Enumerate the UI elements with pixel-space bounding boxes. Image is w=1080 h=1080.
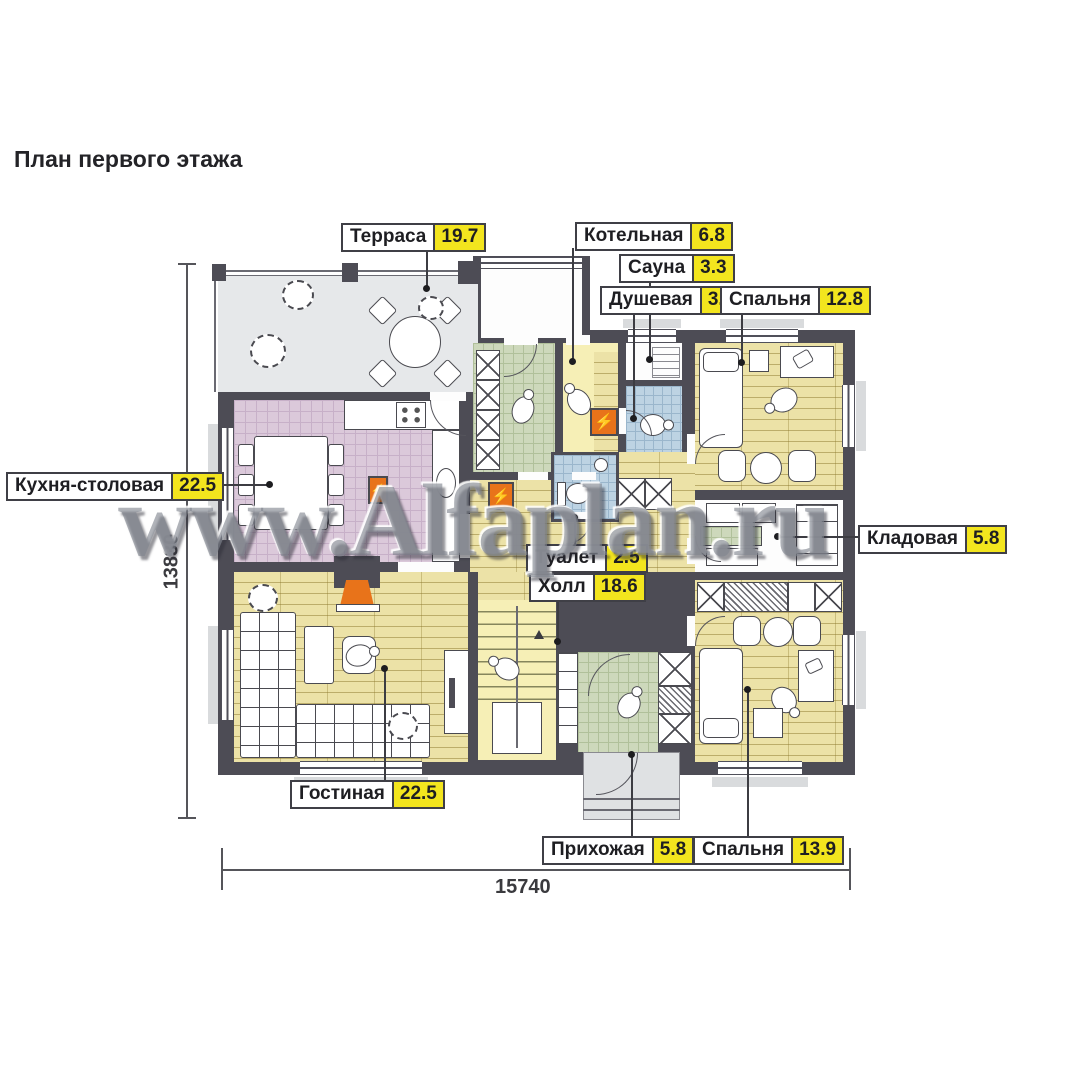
leader-bedroom1-dot: [738, 359, 745, 366]
label-hall-name: Холл: [529, 573, 595, 602]
leader-storage: [778, 536, 860, 538]
label-entry: Прихожая 5.8: [542, 836, 694, 865]
living-plant-2: [388, 712, 418, 740]
leader-living: [384, 668, 386, 780]
bedroom2-wardrobe-left: [697, 582, 724, 612]
sauna-window-sill: [623, 319, 681, 328]
leader-boiler-dot: [569, 358, 576, 365]
lobby-hall-door-gap: [518, 472, 548, 480]
boiler-door-gap: [566, 335, 590, 345]
label-terrace-area: 19.7: [435, 223, 486, 252]
living-coffee-table: [304, 626, 334, 684]
leader-kitchen-dot: [266, 481, 273, 488]
wc-toilet-bowl: [566, 483, 590, 504]
label-sauna: Сауна 3.3: [619, 254, 735, 283]
lobby-wardrobe-1: [476, 350, 500, 380]
label-sauna-area: 3.3: [694, 254, 734, 283]
bedroom2-side-table: [753, 708, 783, 738]
label-boiler-name: Котельная: [575, 222, 692, 251]
dim-width-value: 15740: [495, 876, 551, 899]
leader-wc-dot: [571, 514, 578, 521]
hall-floor-spur-up: [613, 452, 695, 480]
storage-shelf-top-1: [706, 503, 740, 523]
living-window-left: [221, 630, 234, 720]
label-bedroom2-area: 13.9: [793, 836, 844, 865]
entry-wardrobe-1: [658, 652, 692, 686]
label-bedroom2: Спальня 13.9: [693, 836, 844, 865]
terrace-plant-1: [282, 280, 314, 310]
label-bedroom1-name: Спальня: [720, 286, 820, 315]
label-wc: Туалет 2.5: [526, 544, 648, 573]
bedroom2-wardrobe-mid: [724, 582, 788, 612]
label-kitchen: Кухня-столовая 22.5: [6, 472, 224, 501]
bedroom1-armchair-2: [788, 450, 816, 482]
label-storage-area: 5.8: [967, 525, 1007, 554]
dining-chair-3: [238, 504, 254, 526]
label-bedroom1: Спальня 12.8: [720, 286, 871, 315]
entry-shelf-left: [558, 652, 578, 744]
wc-door-gap: [566, 512, 590, 519]
leader-bedroom2: [747, 690, 749, 836]
label-storage-name: Кладовая: [858, 525, 967, 554]
bedroom2-bottom-window-sill: [712, 777, 808, 787]
storage-shelf-top-2: [742, 503, 776, 523]
label-hall-area: 18.6: [595, 573, 646, 602]
entry-bay-interior: [481, 264, 582, 338]
dining-chair-1: [238, 444, 254, 466]
leader-bedroom2-dot: [744, 686, 751, 693]
stairs-wall: [468, 598, 478, 762]
leader-storage-dot: [774, 533, 781, 540]
shower-door-gap: [619, 408, 626, 434]
lobby-wardrobe-2: [476, 380, 500, 410]
wc-sink: [594, 458, 608, 472]
entry-wardrobe-2: [658, 686, 692, 714]
terrace-post-mid: [342, 263, 358, 282]
leader-terrace: [426, 251, 428, 289]
leader-wc: [574, 518, 576, 544]
bedroom1-pillow: [703, 352, 739, 372]
storage-door-gap: [687, 538, 695, 564]
wc-toilet-tank: [557, 482, 566, 506]
leader-entry: [631, 755, 633, 836]
terrace-table: [389, 316, 441, 368]
dim-tick-width-right: [849, 848, 851, 890]
leader-hall: [557, 598, 559, 642]
bedroom1-table: [750, 452, 782, 484]
label-kitchen-name: Кухня-столовая: [6, 472, 173, 501]
dim-line-height: [186, 264, 188, 818]
living-window-bottom: [300, 761, 422, 775]
label-shower-name: Душевая: [600, 286, 702, 315]
bedroom2-table: [763, 617, 793, 647]
kitchen-living-opening: [398, 562, 454, 572]
terrace-railing-left: [214, 270, 216, 392]
bedroom1-nightstand: [749, 350, 769, 372]
entry-wardrobe-3: [658, 714, 692, 744]
boiler-unit: ⚡: [590, 408, 618, 436]
living-window-left-sill: [208, 626, 218, 724]
dining-chair-4: [328, 444, 344, 466]
leader-terrace-dot: [423, 285, 430, 292]
dim-tick-height-top: [178, 263, 196, 265]
label-terrace: Терраса 19.7: [341, 223, 486, 252]
bay-window: [481, 257, 582, 269]
label-bedroom2-name: Спальня: [693, 836, 793, 865]
bedroom2-armchair-2: [793, 616, 821, 646]
label-sauna-name: Сауна: [619, 254, 694, 283]
living-sofa-vertical: [240, 612, 296, 758]
boiler-hall-door-gap: [572, 472, 596, 480]
living-tv-cabinet: [444, 650, 470, 734]
living-plant-1: [248, 584, 278, 612]
label-bedroom1-area: 12.8: [820, 286, 871, 315]
hall-closet-2: [645, 478, 672, 510]
kitchen-electric-panel: ⚡: [368, 476, 388, 504]
bedroom2-wardrobe-shelf: [788, 582, 815, 612]
label-wc-area: 2.5: [607, 544, 647, 573]
label-storage: Кладовая 5.8: [858, 525, 1007, 554]
leader-hall-dot: [554, 638, 561, 645]
label-kitchen-area: 22.5: [173, 472, 224, 501]
terrace-plant-3: [418, 296, 444, 320]
fireplace-base: [336, 604, 380, 612]
label-living-name: Гостиная: [290, 780, 394, 809]
bedroom2-bottom-window: [718, 761, 802, 775]
terrace-post-left: [212, 264, 226, 281]
bedroom2-pillow: [703, 718, 739, 738]
terrace-plant-2: [250, 334, 286, 368]
bedroom2-armchair-1: [733, 616, 761, 646]
terrace-post-right: [458, 261, 479, 284]
stairs-direction-arrow: [534, 630, 544, 639]
dining-chair-6: [328, 504, 344, 526]
bedroom1-top-window-sill: [720, 319, 804, 328]
leader-entry-dot: [628, 751, 635, 758]
leader-living-dot: [381, 665, 388, 672]
leader-shower-dot: [630, 415, 637, 422]
hall-electric-panel: ⚡: [488, 482, 514, 510]
label-boiler-area: 6.8: [692, 222, 732, 251]
hall-closet-1: [618, 478, 645, 510]
bedroom2-right-window: [842, 635, 855, 705]
leader-bedroom1: [741, 311, 743, 363]
label-boiler: Котельная 6.8: [575, 222, 733, 251]
lobby-wardrobe-4: [476, 440, 500, 470]
living-tv-screen: [449, 678, 455, 708]
floor-plan-page: План первого этажа: [0, 0, 1080, 1080]
bedroom2-door-gap: [687, 616, 695, 646]
kitchen-hall-opening: [460, 514, 470, 558]
kitchen-sink: [436, 468, 456, 498]
bedroom2-wardrobe-right: [815, 582, 842, 612]
bedroom2-right-window-sill: [856, 631, 866, 709]
kitchen-stove: [396, 402, 426, 428]
dim-height-value: 13830: [161, 530, 184, 594]
label-wc-name: Туалет: [526, 544, 607, 573]
storage-unit-right: [796, 504, 838, 566]
dim-line-width: [222, 869, 850, 871]
dining-chair-5: [328, 474, 344, 496]
label-terrace-name: Терраса: [341, 223, 435, 252]
leader-boiler: [572, 248, 574, 362]
label-entry-area: 5.8: [654, 836, 694, 865]
sauna-bench: [652, 347, 680, 378]
label-living: Гостиная 22.5: [290, 780, 445, 809]
label-hall: Холл 18.6: [529, 573, 646, 602]
dim-tick-width-left: [221, 848, 223, 890]
sauna-window: [628, 329, 676, 343]
lobby-wardrobe-3: [476, 410, 500, 440]
dim-tick-height-bottom: [178, 817, 196, 819]
bedroom1-right-window: [842, 385, 855, 447]
bedroom1-top-window: [726, 329, 798, 343]
bedroom1-right-window-sill: [856, 381, 866, 451]
label-living-area: 22.5: [394, 780, 445, 809]
leader-shower: [633, 311, 635, 419]
leader-sauna-dot: [646, 356, 653, 363]
label-entry-name: Прихожая: [542, 836, 654, 865]
bedroom1-door-gap: [687, 434, 695, 464]
